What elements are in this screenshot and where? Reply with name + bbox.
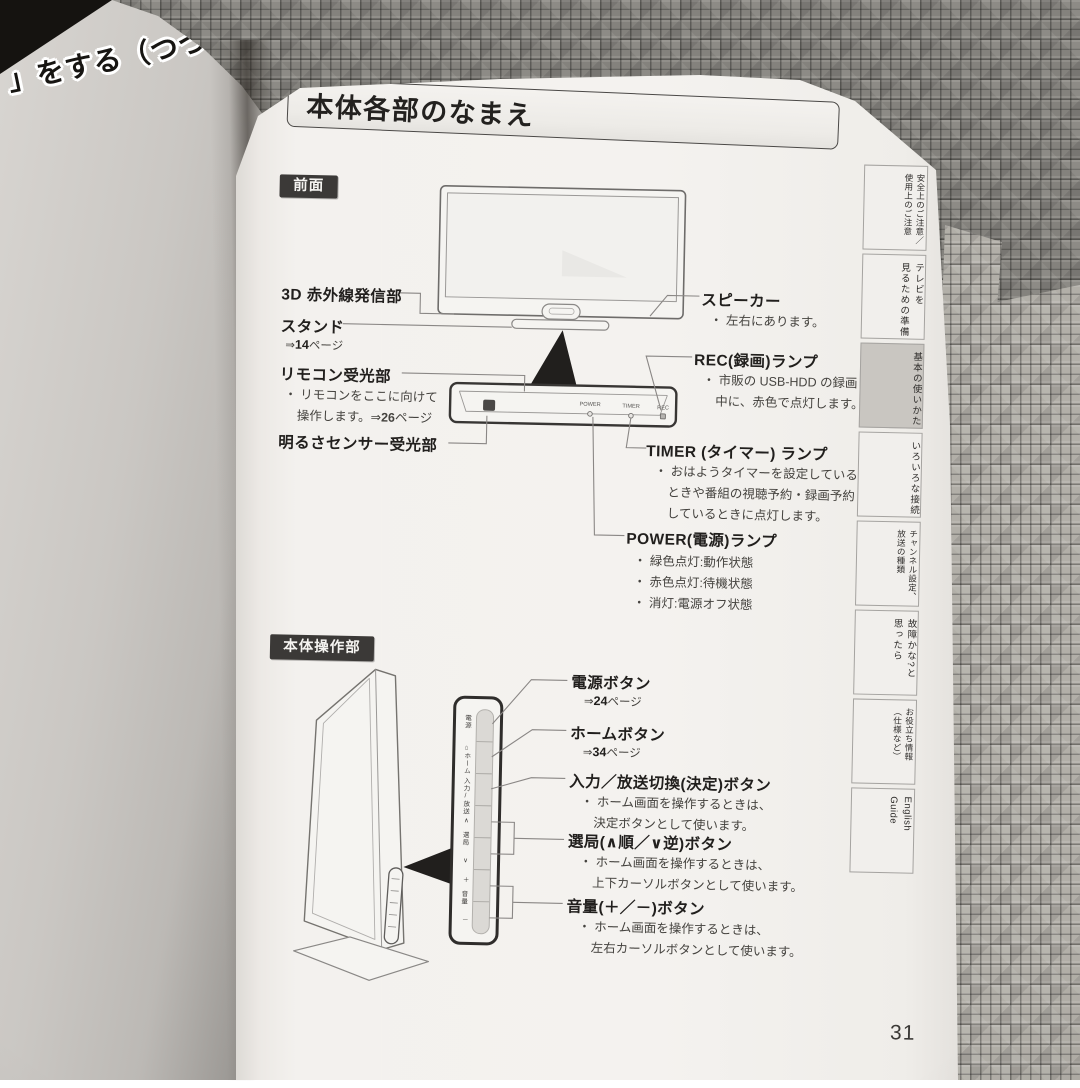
label-home-button-pageref: ⇒34ページ (583, 744, 641, 761)
zoom-pointer-triangle (531, 330, 578, 386)
label-stand: スタンド (281, 314, 345, 337)
front-tv-diagram (438, 186, 686, 332)
section-tag-controls: 本体操作部 (270, 634, 375, 661)
label-speaker: スピーカー (701, 288, 781, 312)
label-power-lamp: POWER(電源)ランプ (626, 527, 777, 552)
label-remote-sensor: リモコン受光部 (280, 362, 392, 386)
zoom-pointer-triangle-2 (403, 847, 452, 884)
brightness-sensor (483, 400, 495, 411)
photo-scene: 」をする（つづき） 本体各部のなまえ (0, 0, 1080, 1080)
strip-channel-label: 選局 (459, 831, 469, 846)
power-lamp-led (588, 412, 593, 417)
page-number: 31 (890, 1021, 916, 1046)
tab-safety-notes: 安全上のご注意／ 使用上のご注意 (862, 165, 928, 251)
strip-volume-down-label: － (458, 916, 468, 924)
strip-channel-down-label: ∨ (459, 856, 469, 865)
tv-stand-side (293, 936, 429, 982)
label-power-button: 電源ボタン (571, 671, 651, 695)
section-tag-front: 前面 (279, 174, 337, 198)
strip-channel-up-label: ∧ (460, 816, 470, 825)
front-sensor-window (542, 304, 580, 320)
label-brightness-sensor: 明るさセンサー受光部 (278, 430, 437, 455)
label-volume-button-note: ・ ホーム画面を操作するときは、 左右カーソルボタンとして使います。 (578, 917, 803, 964)
control-panel (450, 697, 502, 944)
label-power-lamp-note: ・ 緑色点灯:動作状態 ・ 赤色点灯:待機状態 ・ 消灯:電源オフ状態 (633, 551, 754, 616)
label-volume-button: 音量(＋／－)ボタン (566, 894, 705, 919)
label-rec-lamp-note: ・ 市販の USB-HDD の録画 中に、赤色で点灯します。 (702, 370, 864, 415)
label-channel-button-note: ・ ホーム画面を操作するときは、 上下カーソルボタンとして使います。 (579, 852, 804, 899)
tab-channel-settings: チャンネル設定、 放送の種類 (855, 520, 921, 606)
tab-useful-info: お役立ち情報 （仕様など） (851, 698, 917, 784)
timer-lamp-led (629, 413, 634, 418)
tab-viewing-preparation: テレビを 見るための準備 (861, 254, 927, 340)
front-lamp-panel: POWER TIMER REC (450, 383, 677, 427)
rec-lamp-led (660, 414, 665, 419)
tab-troubleshooting: 故障かな?と 思ったら (853, 609, 919, 695)
label-power-button-pageref: ⇒24ページ (584, 693, 642, 710)
strip-home-label: ⌂ホーム (460, 744, 471, 775)
label-remote-sensor-note: ・ リモコンをここに向けて 操作します。⇒26ページ (284, 384, 438, 429)
timer-lamp-label: TIMER (622, 404, 640, 410)
label-3d-ir-emitter: 3D 赤外線発信部 (281, 282, 402, 307)
label-stand-pageref: ⇒14ページ (285, 336, 343, 353)
strip-input-label: 入力/放送 (460, 777, 471, 815)
strip-volume-up-label: ＋ (459, 876, 469, 884)
power-lamp-label: POWER (580, 402, 601, 408)
label-speaker-note: ・ 左右にあります。 (710, 310, 825, 333)
rec-lamp-label: REC (657, 405, 669, 411)
tv-stand-base (512, 319, 609, 330)
label-rec-lamp: REC(録画)ランプ (694, 348, 819, 373)
strip-power-label: 電源 (461, 714, 471, 729)
manual-page: 本体各部のなまえ (230, 46, 964, 1080)
tab-english-guide: English Guide (849, 787, 915, 873)
label-timer-lamp-note: ・ おはようタイマーを設定している ときや番組の視聴予約・録画予約 しているとき… (654, 461, 858, 528)
side-tv-diagram (293, 668, 434, 982)
strip-volume-label: 音量 (458, 890, 468, 905)
tab-various-connections: いろいろな接続 (857, 431, 923, 517)
tab-basic-usage: 基本の使いかた (859, 343, 925, 429)
label-home-button: ホームボタン (570, 722, 665, 746)
page-content: 本体各部のなまえ (245, 74, 966, 1088)
